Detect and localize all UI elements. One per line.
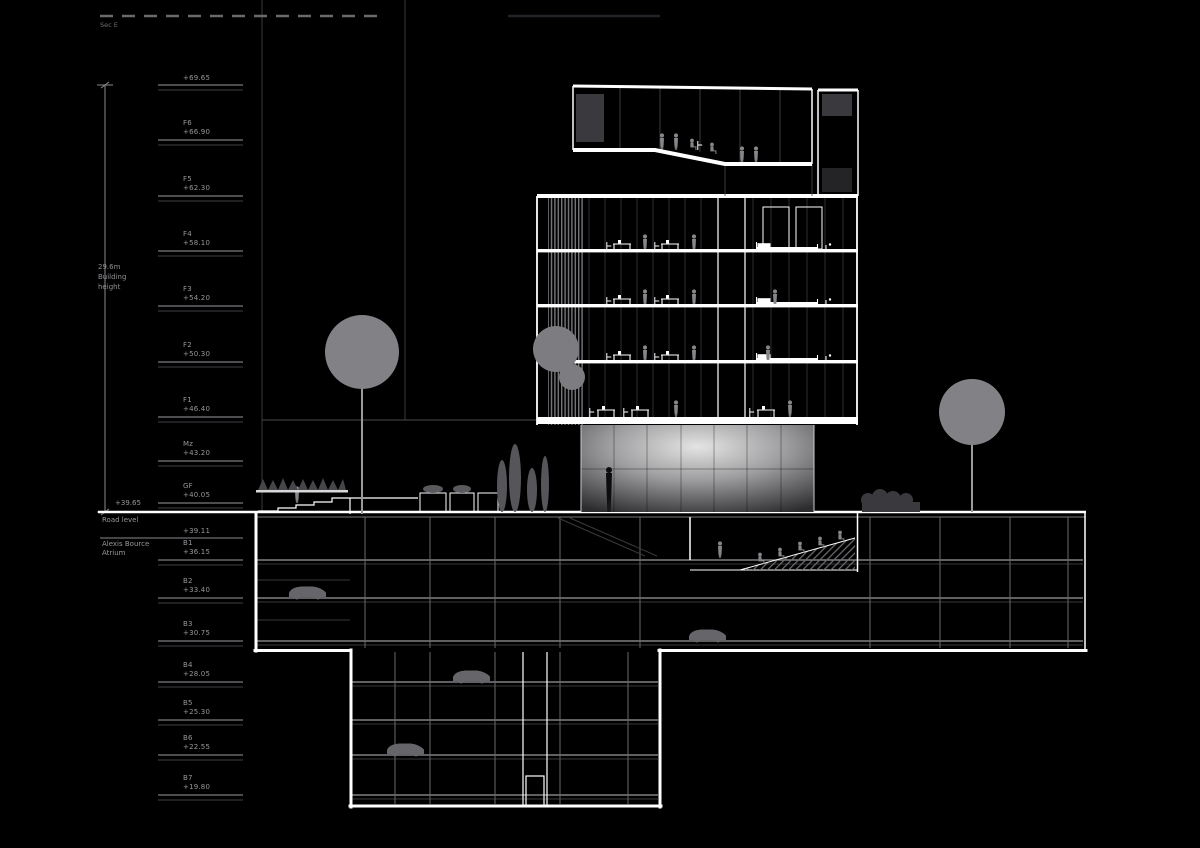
level-label: F1+46.40 [183,396,210,414]
louver-facade [548,196,583,425]
level-label: B4+28.05 [183,661,210,679]
planter-boxes [420,493,498,512]
lobby [581,425,814,512]
planter-strip [256,478,348,493]
level-label: +69.65 [183,74,210,83]
level-label: F3+54.20 [183,285,210,303]
plaza [256,444,549,514]
atrium-auditorium [690,512,858,572]
top-volume [573,86,858,196]
level-label: B7+19.80 [183,774,210,792]
tree-right [939,379,1005,512]
dark-window-left [576,94,604,142]
level-label: F2+50.30 [183,341,210,359]
tower [537,194,858,425]
height-dimension-line [97,82,113,515]
stair-core [523,652,547,806]
f1-furniture [590,400,792,417]
section-drawing: Sec E 29.6m Building height +39.65 Road … [0,0,1200,848]
level-label: F4+58.10 [183,230,210,248]
tree-left [325,315,399,514]
road-level-label: Road level [102,516,138,524]
building-height-dimension-label: 29.6m Building height [98,262,126,292]
f6-figures [660,133,758,163]
level-label: B5+25.30 [183,699,210,717]
road-level-line [98,512,1086,517]
section-linework [0,0,1200,848]
level-label: B3+30.75 [183,620,210,638]
level-label: GF+40.05 [183,482,210,500]
basement [255,512,1086,807]
roadside-shrubs [861,489,920,512]
level-label: B2+33.40 [183,577,210,595]
level-label: F6+66.90 [183,119,210,137]
site-guide-lines [262,0,536,512]
road-level-value: +39.65 [115,499,141,507]
wardrobes-f5 [763,207,822,249]
parking-ramp [558,518,657,556]
tall-plants [497,444,549,512]
dark-window-right [822,94,852,116]
atrium-label: Alexis Bource Atrium [102,540,149,558]
level-label: B1+36.15 [183,539,210,557]
level-label: F5+62.30 [183,175,210,193]
level-label: B6+22.55 [183,734,210,752]
level-label: Mz+43.20 [183,440,210,458]
scale-bar-label: Sec E [100,21,118,29]
level-label: +39.11 [183,527,210,536]
